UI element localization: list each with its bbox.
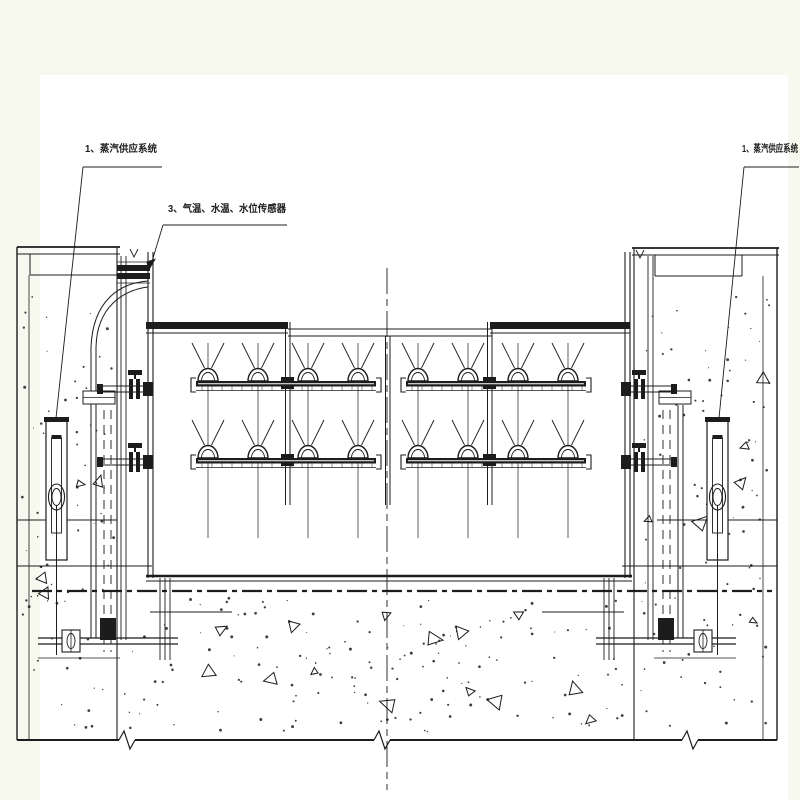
drawing-svg: 1、蒸汽供应系统 3、气温、水温、水位传感器 1、蒸汽供应系统 — [0, 0, 800, 800]
engineering-drawing: 1、蒸汽供应系统 3、气温、水温、水位传感器 1、蒸汽供应系统 — [0, 0, 800, 800]
label-steam-supply-right: 1、蒸汽供应系统 — [742, 142, 798, 155]
drawing-canvas — [40, 75, 788, 800]
label-sensors: 3、气温、水温、水位传感器 — [168, 202, 287, 215]
label-steam-supply-left: 1、蒸汽供应系统 — [85, 142, 157, 155]
